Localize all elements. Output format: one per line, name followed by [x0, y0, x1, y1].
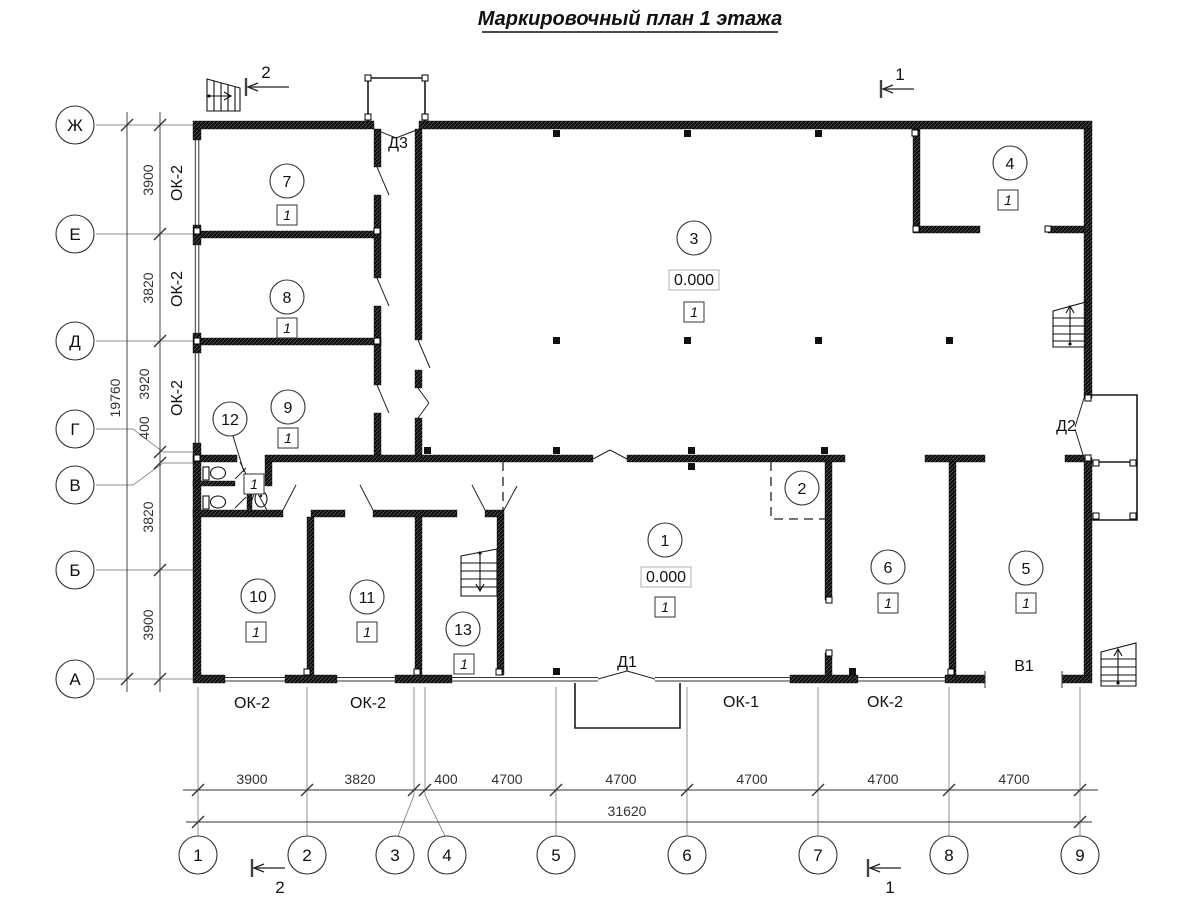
- svg-text:В: В: [69, 476, 80, 495]
- svg-text:11: 11: [359, 590, 376, 607]
- axis-h-6: 6: [668, 836, 706, 874]
- dim-bottom-7: 4700: [998, 771, 1029, 787]
- dim-bottom-6: 4700: [867, 771, 898, 787]
- section-mark-2-bottom: 2: [252, 859, 285, 897]
- room-8-mark: 8 1: [270, 280, 304, 338]
- room-1-mark: 1 0.000 1: [641, 523, 691, 617]
- section-mark-1-top: 1: [881, 65, 914, 98]
- axis-h-3: 3: [376, 836, 414, 874]
- room-6-mark: 6 1: [871, 550, 905, 613]
- svg-text:4: 4: [1006, 156, 1015, 173]
- interior-stair-room13-icon: [461, 549, 497, 596]
- window-label-ok2-bottom3: ОК-2: [867, 694, 903, 711]
- door-label-d1: Д1: [617, 654, 637, 671]
- window-label-ok2-left3: ОК-2: [169, 380, 186, 416]
- dim-bottom-0: 3900: [236, 771, 267, 787]
- svg-text:Д: Д: [69, 332, 81, 351]
- entrance-porch-d1: [575, 683, 680, 728]
- side-porch-d2: [1092, 395, 1137, 520]
- svg-text:6: 6: [884, 560, 893, 577]
- room-3-mark: 3 0.000 1: [669, 221, 719, 322]
- axis-h-8: 8: [930, 836, 968, 874]
- window-label-ok2-left2: ОК-2: [169, 271, 186, 307]
- window-label-ok2-left1: ОК-2: [169, 165, 186, 201]
- svg-text:8: 8: [944, 846, 953, 865]
- window-label-ok1-bottom: ОК-1: [723, 694, 759, 711]
- section-mark-2-top: 2: [246, 63, 289, 96]
- svg-text:9: 9: [1075, 846, 1084, 865]
- dim-left-1: 3820: [140, 272, 156, 303]
- dim-bottom-3: 4700: [491, 771, 522, 787]
- axis-h-9: 9: [1061, 836, 1099, 874]
- svg-text:1: 1: [250, 476, 258, 492]
- window-label-ok2-bottom1: ОК-2: [234, 695, 270, 712]
- axis-h-5: 5: [537, 836, 575, 874]
- room-9-mark: 9 1: [271, 390, 305, 448]
- axis-v-g: Г: [56, 410, 94, 448]
- room-2-mark: 2: [785, 471, 819, 505]
- dim-bottom-1: 3820: [344, 771, 375, 787]
- dim-bottom-4: 4700: [605, 771, 636, 787]
- dashed-lines: [503, 462, 829, 519]
- axis-h-2: 2: [288, 836, 326, 874]
- door-label-d2: Д2: [1056, 418, 1076, 435]
- svg-text:Ж: Ж: [67, 116, 83, 135]
- door-label-d3: Д3: [388, 135, 408, 152]
- axis-v-d: Д: [56, 322, 94, 360]
- dim-bottom-2: 400: [434, 771, 458, 787]
- room-7-mark: 7 1: [270, 164, 304, 225]
- gate-label-v1: В1: [1014, 658, 1034, 675]
- svg-text:6: 6: [682, 846, 691, 865]
- dim-left-3: 400: [136, 416, 152, 440]
- toilet-icon: [203, 467, 226, 480]
- svg-text:1: 1: [661, 533, 670, 550]
- svg-text:1: 1: [1022, 595, 1030, 611]
- walls: [193, 121, 1092, 683]
- columns: [194, 130, 1091, 675]
- svg-text:10: 10: [249, 589, 267, 606]
- svg-text:1: 1: [661, 599, 669, 615]
- axis-v-zh: Ж: [56, 106, 94, 144]
- svg-text:8: 8: [283, 290, 292, 307]
- section-label: 1: [895, 65, 904, 84]
- svg-text:Е: Е: [69, 225, 80, 244]
- section-mark-1-bottom: 1: [868, 859, 901, 897]
- svg-text:1: 1: [690, 304, 698, 320]
- svg-text:1: 1: [252, 624, 260, 640]
- dim-left-0: 3900: [140, 164, 156, 195]
- svg-text:1: 1: [884, 595, 892, 611]
- axis-h-4: 4: [428, 836, 466, 874]
- room-11-mark: 11 1: [350, 580, 384, 642]
- svg-text:5: 5: [551, 846, 560, 865]
- svg-text:1: 1: [283, 320, 291, 336]
- interior-stair-right-icon: [1053, 302, 1086, 347]
- axis-v-e: Е: [56, 215, 94, 253]
- dim-bottom-5: 4700: [736, 771, 767, 787]
- svg-text:3: 3: [390, 846, 399, 865]
- room-5-mark: 5 1: [1009, 551, 1043, 613]
- svg-text:Г: Г: [70, 420, 79, 439]
- axis-h-7: 7: [799, 836, 837, 874]
- svg-text:5: 5: [1022, 561, 1031, 578]
- svg-text:1: 1: [193, 846, 202, 865]
- svg-text:1: 1: [284, 430, 292, 446]
- svg-text:13: 13: [454, 622, 472, 639]
- exterior-stair-bottom-right-icon: [1101, 643, 1136, 686]
- axis-v-a: А: [56, 660, 94, 698]
- title-block: Маркировочный план 1 этажа: [478, 8, 783, 32]
- page-title: Маркировочный план 1 этажа: [478, 8, 783, 30]
- drawing-sheet: Маркировочный план 1 этажа: [0, 0, 1200, 900]
- window-label-ok2-bottom2: ОК-2: [350, 695, 386, 712]
- axis-v-v: В: [56, 466, 94, 504]
- svg-text:1: 1: [460, 656, 468, 672]
- dim-left-total: 19760: [107, 378, 123, 417]
- svg-text:2: 2: [302, 846, 311, 865]
- svg-text:3: 3: [690, 231, 699, 248]
- elevation-mark: 0.000: [674, 272, 714, 289]
- dim-left-4: 3820: [140, 501, 156, 532]
- axis-markers: Ж Е Д Г В Б А 1 2 3 4 5 6 7 8 9: [56, 106, 1099, 874]
- svg-text:2: 2: [798, 481, 807, 498]
- room-10-mark: 10 1: [241, 579, 275, 642]
- svg-text:7: 7: [813, 846, 822, 865]
- dim-bottom-total: 31620: [608, 803, 647, 819]
- windows-glazing: [195, 140, 1062, 688]
- svg-text:1: 1: [283, 207, 291, 223]
- elevation-mark: 0.000: [646, 569, 686, 586]
- svg-text:А: А: [69, 670, 81, 689]
- toilet-icon: [203, 496, 226, 509]
- exterior-stair-top-left-icon: [207, 79, 240, 111]
- section-label: 1: [885, 878, 894, 897]
- svg-text:4: 4: [442, 846, 451, 865]
- floor-plan-canvas: Маркировочный план 1 этажа: [0, 0, 1200, 900]
- dim-left-2: 3920: [136, 368, 152, 399]
- dim-left-5: 3900: [140, 609, 156, 640]
- svg-text:12: 12: [221, 412, 239, 429]
- room-13-mark: 13 1: [446, 612, 480, 674]
- room-4-mark: 4 1: [993, 146, 1027, 210]
- svg-text:7: 7: [283, 174, 292, 191]
- section-label: 2: [261, 63, 270, 82]
- svg-text:1: 1: [1004, 192, 1012, 208]
- axis-v-b: Б: [56, 551, 94, 589]
- top-vestibule: [368, 78, 425, 121]
- opening-labels: ОК-2 ОК-2 ОК-2 ОК-2 ОК-2 ОК-1 ОК-2 Д1 Д2…: [169, 135, 1076, 712]
- section-label: 2: [275, 878, 284, 897]
- svg-text:Б: Б: [69, 561, 80, 580]
- svg-text:1: 1: [363, 624, 371, 640]
- svg-text:9: 9: [284, 400, 293, 417]
- axis-h-1: 1: [179, 836, 217, 874]
